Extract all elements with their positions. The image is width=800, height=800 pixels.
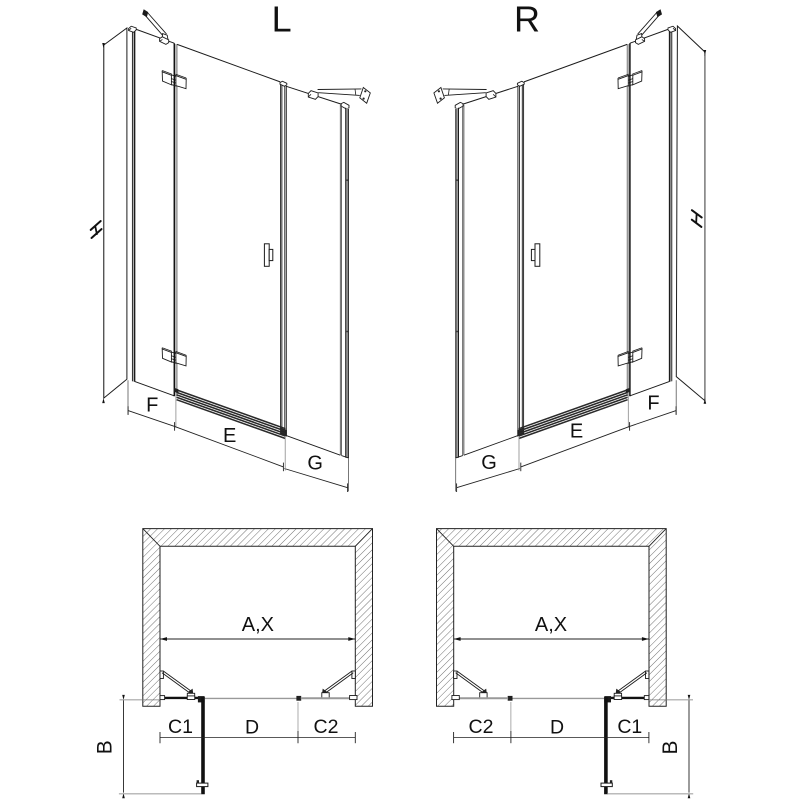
svg-text:F: F [647,393,659,415]
svg-text:E: E [570,420,583,442]
svg-text:D: D [245,717,259,739]
svg-text:C1: C1 [168,716,193,738]
svg-text:G: G [307,453,323,475]
svg-text:L: L [272,0,292,40]
svg-text:E: E [223,425,236,447]
svg-text:A,X: A,X [535,614,567,636]
svg-text:C2: C2 [469,716,494,738]
svg-text:G: G [481,452,497,474]
svg-text:F: F [146,395,158,417]
svg-text:D: D [550,717,564,739]
svg-text:A,X: A,X [242,614,274,636]
svg-text:C1: C1 [617,716,642,738]
svg-text:B: B [659,740,682,754]
svg-text:R: R [514,0,540,40]
svg-text:B: B [94,740,117,754]
svg-text:C2: C2 [314,716,339,738]
